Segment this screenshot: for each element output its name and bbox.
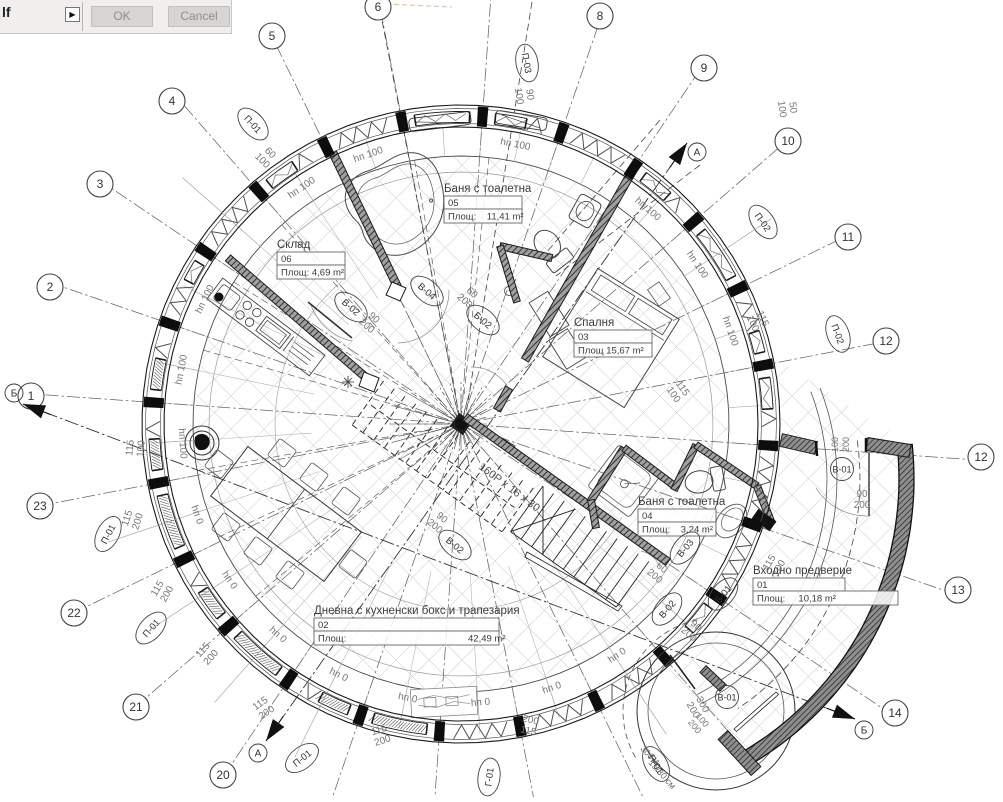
svg-text:6: 6 (375, 0, 382, 14)
svg-text:21: 21 (129, 700, 143, 714)
svg-text:Площ:: Площ: (318, 634, 346, 645)
svg-text:hп 0: hп 0 (471, 697, 491, 709)
svg-text:13: 13 (951, 583, 965, 597)
svg-text:Б: Б (11, 389, 18, 400)
svg-text:Баня с тоалетна: Баня с тоалетна (444, 183, 532, 195)
svg-text:200: 200 (854, 500, 871, 511)
svg-text:Баня с тоалетна: Баня с тоалетна (638, 496, 726, 508)
svg-text:06: 06 (281, 254, 292, 265)
svg-text:200: 200 (841, 437, 851, 452)
svg-text:14: 14 (888, 706, 902, 720)
svg-text:12: 12 (974, 450, 988, 464)
svg-text:05: 05 (448, 198, 459, 209)
svg-text:23: 23 (33, 499, 47, 513)
svg-text:В-01: В-01 (717, 693, 736, 703)
svg-text:Площ: 10,18 m²: Площ: 10,18 m² (757, 594, 836, 605)
svg-text:1: 1 (28, 389, 35, 403)
svg-text:20: 20 (216, 768, 230, 782)
svg-text:02: 02 (318, 620, 329, 631)
svg-text:90: 90 (856, 489, 868, 500)
svg-text:3: 3 (97, 177, 104, 191)
svg-text:01: 01 (757, 580, 768, 591)
svg-text:Склад: Склад (277, 239, 311, 251)
svg-text:11: 11 (842, 230, 855, 244)
svg-text:Площ: 11,41 m²: Площ: 11,41 m² (448, 212, 524, 223)
svg-text:2: 2 (47, 280, 54, 294)
svg-text:4: 4 (169, 94, 176, 108)
svg-text:А: А (694, 148, 701, 159)
svg-text:22: 22 (67, 606, 81, 620)
svg-text:hп 100: hп 100 (176, 428, 189, 460)
svg-text:Г-01: Г-01 (483, 767, 496, 787)
svg-text:100: 100 (135, 440, 147, 458)
svg-text:Дневна с кухненски бокс и трап: Дневна с кухненски бокс и трапезария (314, 605, 520, 617)
svg-text:5: 5 (269, 29, 276, 43)
svg-text:Б: Б (861, 726, 868, 737)
svg-text:100: 100 (830, 437, 840, 452)
svg-text:9: 9 (701, 61, 708, 75)
svg-text:Площ: 3,24 m²: Площ: 3,24 m² (642, 525, 713, 536)
svg-text:Площ: 4,69 m²: Площ: 4,69 m² (281, 268, 344, 279)
svg-text:В-01: В-01 (832, 465, 851, 475)
svg-text:8: 8 (597, 9, 604, 23)
svg-text:10: 10 (781, 134, 795, 148)
svg-text:Площ 15,67 m²: Площ 15,67 m² (578, 346, 644, 357)
svg-text:12: 12 (879, 334, 893, 348)
svg-text:42,49 m²: 42,49 m² (468, 634, 506, 645)
svg-text:Спалня: Спалня (574, 317, 614, 329)
svg-text:03: 03 (578, 332, 589, 343)
svg-text:А: А (255, 749, 262, 760)
svg-text:04: 04 (642, 511, 653, 522)
